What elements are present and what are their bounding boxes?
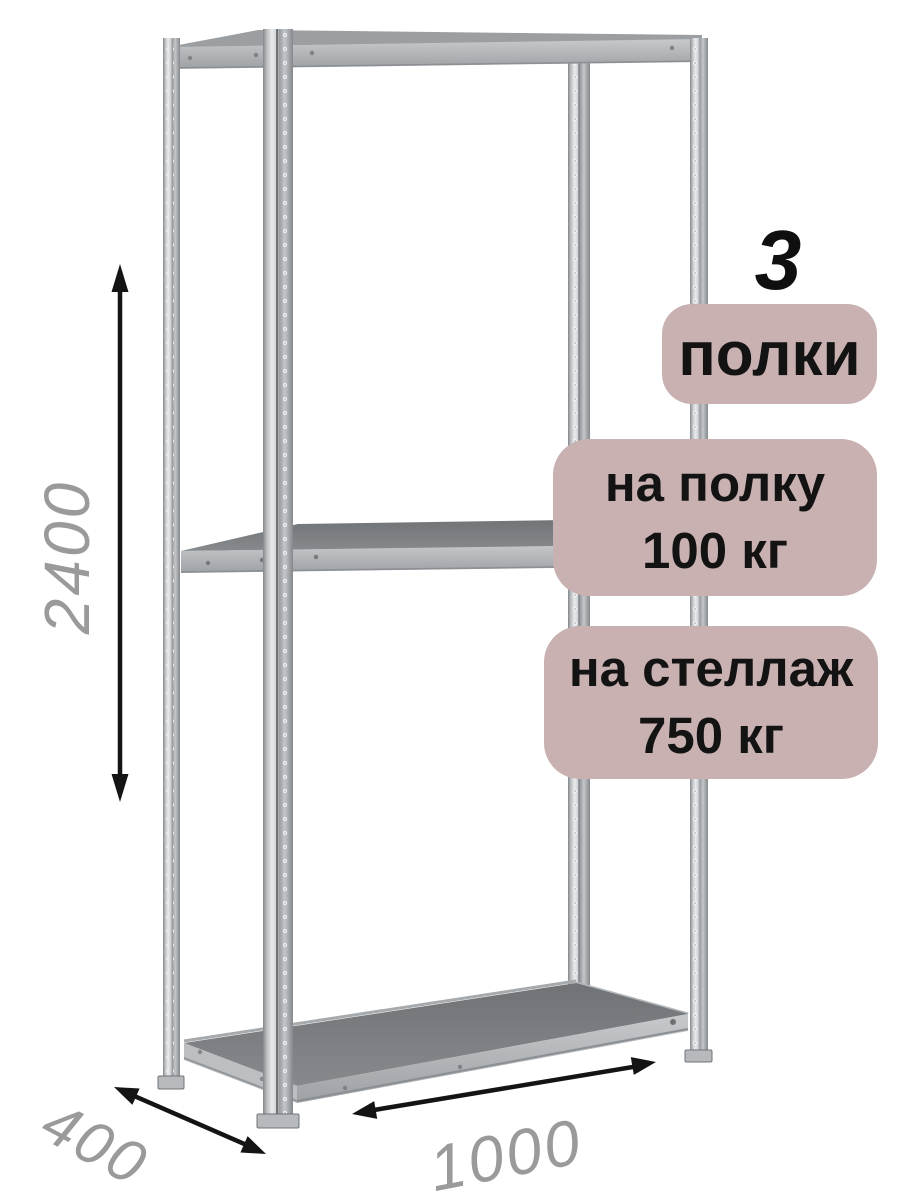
height-dimension-label: 2400 <box>32 447 102 667</box>
shelf-count-badge: полки <box>662 304 877 404</box>
shelf-load-badge: на полку 100 кг <box>553 439 877 596</box>
shelf-load-line2: 100 кг <box>642 518 788 584</box>
rack-top-shelf <box>168 30 702 69</box>
product-image: 2400 1000 400 3 полки на полку 100 кг на… <box>0 0 900 1200</box>
shelf-load-line1: на полку <box>605 451 825 517</box>
rack-load-badge: на стеллаж 750 кг <box>544 626 878 779</box>
rack-bottom-shelf <box>184 981 688 1103</box>
height-dimension-arrow <box>112 264 129 802</box>
rack-post-left-back <box>158 38 184 1089</box>
rack-load-line2: 750 кг <box>638 703 784 769</box>
shelving-rack-illustration <box>0 0 900 1200</box>
rack-load-line1: на стеллаж <box>569 636 853 702</box>
rack-post-left-front <box>257 29 299 1128</box>
shelf-count-badge-label: полки <box>678 319 860 390</box>
shelf-count-number: 3 <box>723 218 833 302</box>
